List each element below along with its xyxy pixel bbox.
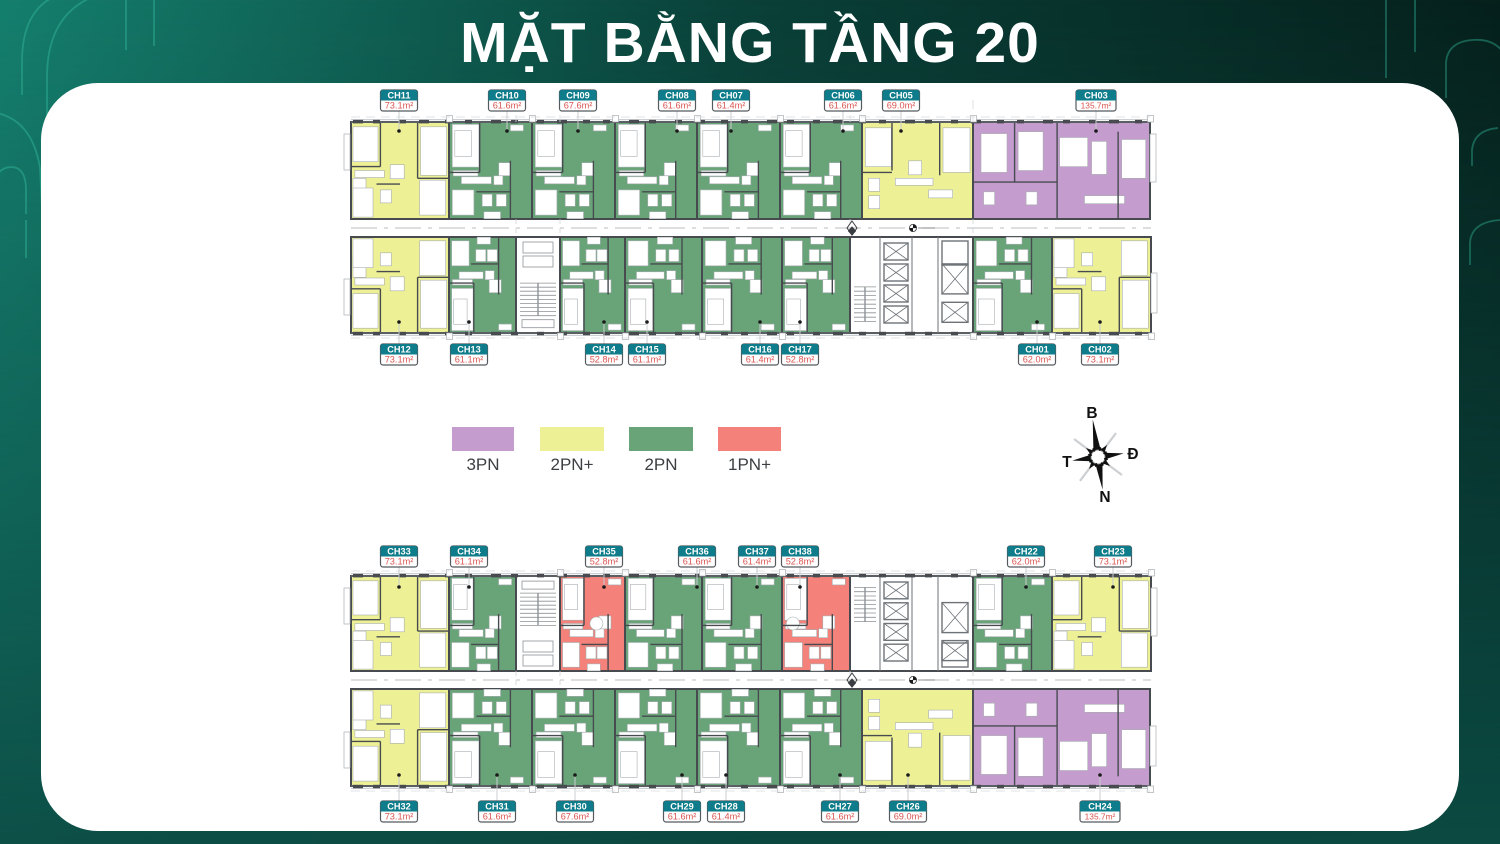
svg-text:Đ: Đ [1127,446,1138,463]
svg-text:135.7m²: 135.7m² [1085,812,1116,822]
svg-text:N: N [1099,489,1110,506]
svg-text:T: T [1062,454,1072,471]
svg-text:52.8m²: 52.8m² [786,355,815,365]
svg-text:1PN+: 1PN+ [728,455,771,474]
svg-text:62.0m²: 62.0m² [1023,355,1052,365]
svg-text:CH28: CH28 [714,802,738,812]
svg-text:CH06: CH06 [831,91,855,101]
svg-text:67.6m²: 67.6m² [564,101,593,111]
svg-text:73.1m²: 73.1m² [385,101,414,111]
svg-text:CH15: CH15 [635,345,659,355]
svg-text:CH37: CH37 [745,547,769,557]
svg-text:61.6m²: 61.6m² [483,812,512,822]
svg-text:CH30: CH30 [563,802,587,812]
svg-text:61.4m²: 61.4m² [743,557,772,567]
svg-text:B: B [1086,405,1097,422]
svg-text:CH01: CH01 [1025,345,1049,355]
svg-text:CH23: CH23 [1101,547,1125,557]
svg-text:CH38: CH38 [788,547,812,557]
svg-text:CH17: CH17 [788,345,812,355]
svg-text:CH31: CH31 [485,802,509,812]
svg-text:73.1m²: 73.1m² [385,355,414,365]
svg-text:CH33: CH33 [387,547,411,557]
svg-text:CH22: CH22 [1014,547,1038,557]
svg-text:CH10: CH10 [495,91,519,101]
svg-text:CH13: CH13 [457,345,481,355]
svg-text:CH09: CH09 [566,91,590,101]
svg-text:135.7m²: 135.7m² [1081,101,1112,111]
svg-text:62.0m²: 62.0m² [1012,557,1041,567]
svg-text:61.6m²: 61.6m² [826,812,855,822]
svg-text:MẶT BẰNG TẦNG 20: MẶT BẰNG TẦNG 20 [460,10,1040,75]
svg-text:61.4m²: 61.4m² [712,812,741,822]
svg-text:61.1m²: 61.1m² [633,355,662,365]
svg-text:CH32: CH32 [387,802,411,812]
svg-text:73.1m²: 73.1m² [385,812,414,822]
svg-text:CH26: CH26 [896,802,920,812]
svg-text:CH27: CH27 [828,802,852,812]
svg-text:73.1m²: 73.1m² [385,557,414,567]
svg-text:CH24: CH24 [1088,802,1112,812]
svg-text:61.6m²: 61.6m² [683,557,712,567]
svg-text:CH05: CH05 [889,91,913,101]
svg-text:CH14: CH14 [592,345,616,355]
svg-text:CH11: CH11 [388,91,411,101]
svg-text:52.8m²: 52.8m² [590,557,619,567]
svg-text:52.8m²: 52.8m² [786,557,815,567]
svg-text:61.6m²: 61.6m² [829,101,858,111]
svg-text:73.1m²: 73.1m² [1086,355,1115,365]
svg-text:CH34: CH34 [457,547,481,557]
svg-text:52.8m²: 52.8m² [590,355,619,365]
svg-text:61.1m²: 61.1m² [455,355,484,365]
svg-text:69.0m²: 69.0m² [894,812,923,822]
svg-text:61.4m²: 61.4m² [717,101,746,111]
svg-text:CH12: CH12 [387,345,411,355]
svg-text:CH02: CH02 [1088,345,1112,355]
svg-text:69.0m²: 69.0m² [887,101,916,111]
svg-text:CH16: CH16 [748,345,772,355]
svg-text:67.6m²: 67.6m² [561,812,590,822]
svg-text:61.6m²: 61.6m² [493,101,522,111]
svg-text:CH03: CH03 [1084,91,1108,101]
svg-text:61.4m²: 61.4m² [746,355,775,365]
svg-text:3PN: 3PN [466,455,499,474]
svg-text:61.1m²: 61.1m² [455,557,484,567]
svg-text:CH07: CH07 [719,91,743,101]
svg-text:CH35: CH35 [592,547,616,557]
svg-text:61.6m²: 61.6m² [663,101,692,111]
svg-text:CH36: CH36 [685,547,709,557]
svg-text:2PN: 2PN [644,455,677,474]
svg-text:61.6m²: 61.6m² [668,812,697,822]
svg-text:2PN+: 2PN+ [551,455,594,474]
svg-text:73.1m²: 73.1m² [1099,557,1128,567]
svg-text:CH29: CH29 [670,802,694,812]
svg-text:CH08: CH08 [665,91,689,101]
